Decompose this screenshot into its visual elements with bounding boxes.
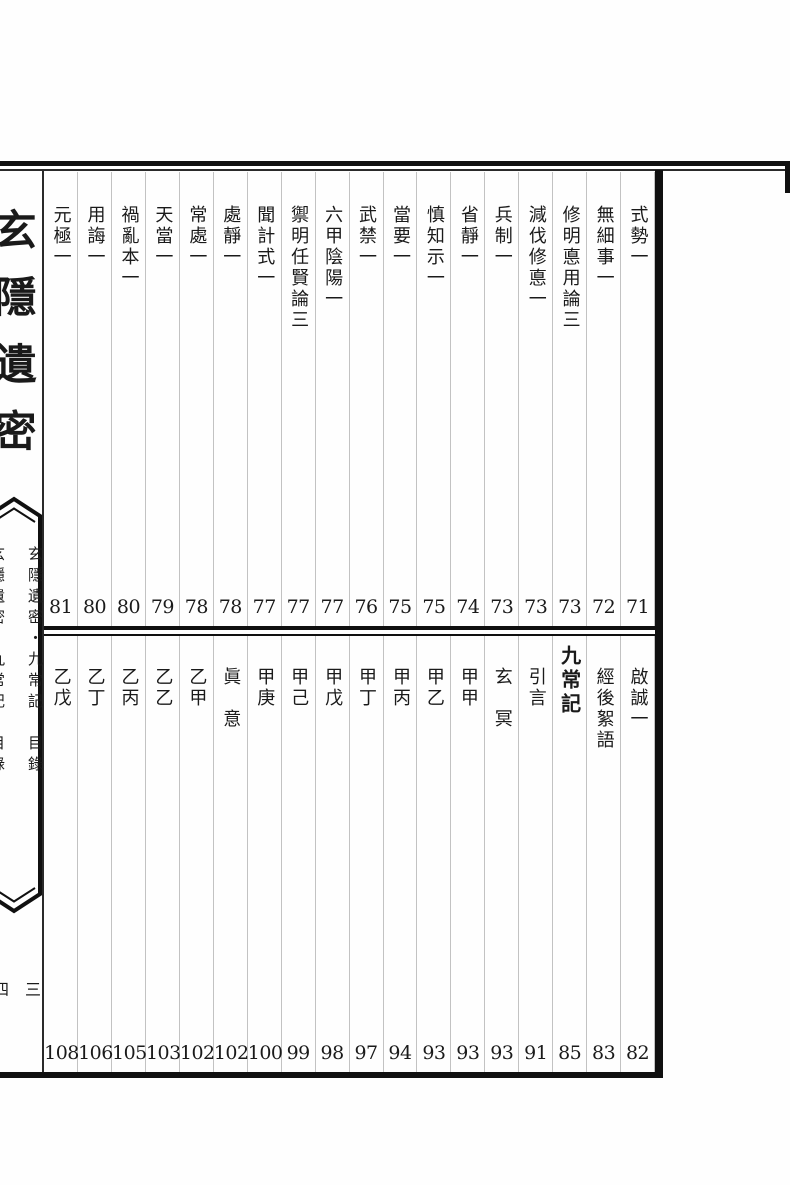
toc-entry-title: 六甲陰陽一 — [323, 205, 341, 310]
toc-entry-title: 常處一 — [187, 205, 205, 268]
toc-entry-column: 無細事一72 — [587, 172, 621, 626]
toc-entry-page-number: 91 — [519, 1042, 552, 1064]
toc-entry-page-number: 75 — [417, 596, 450, 618]
toc-entry-page-number: 102 — [214, 1042, 247, 1064]
toc-entry-title: 玄 冥 — [493, 667, 511, 730]
toc-entry-page-number: 100 — [248, 1042, 281, 1064]
toc-entry-title: 修明悳用論三 — [561, 205, 579, 331]
toc-entry-page-number: 73 — [553, 596, 586, 618]
toc-entry-column: 引言91 — [519, 636, 553, 1072]
toc-entry-title: 乙丁 — [86, 667, 104, 709]
toc-entry-page-number: 72 — [587, 596, 620, 618]
toc-entry-title: 兵制一 — [493, 205, 511, 268]
toc-entry-column: 修明悳用論三73 — [553, 172, 587, 626]
toc-entry-title: 乙戊 — [52, 667, 70, 709]
toc-entry-column: 啟誠一82 — [621, 636, 655, 1072]
toc-entry-title: 無細事一 — [595, 205, 613, 289]
toc-entry-column: 甲丁97 — [350, 636, 384, 1072]
toc-entry-page-number: 77 — [248, 596, 281, 618]
toc-entry-column: 眞 意102 — [214, 636, 248, 1072]
toc-entry-column: 元極一81 — [44, 172, 78, 626]
toc-entry-page-number: 108 — [44, 1042, 77, 1064]
toc-entry-column: 武禁一76 — [350, 172, 384, 626]
toc-entry-title: 甲己 — [289, 667, 307, 709]
toc-entry-title: 乙乙 — [153, 667, 171, 709]
toc-entry-column: 天當一79 — [146, 172, 180, 626]
toc-entry-title: 甲戊 — [323, 667, 341, 709]
toc-entry-page-number: 80 — [112, 596, 145, 618]
toc-entry-title: 處靜一 — [221, 205, 239, 268]
folio-number-three: 三 — [25, 982, 41, 998]
toc-entry-page-number: 77 — [282, 596, 315, 618]
toc-entry-page-number: 77 — [316, 596, 349, 618]
top-border-thin — [0, 169, 790, 171]
toc-entry-page-number: 94 — [384, 1042, 417, 1064]
toc-entry-column: 常處一78 — [180, 172, 214, 626]
book-page: 玄隱遺密 玄隱遺密・九常記 目錄 玄隱遺密・九常記 目錄 三 四 式勢一71無細… — [0, 0, 790, 1185]
toc-entry-title: 元極一 — [52, 205, 70, 268]
toc-entry-title: 啟誠一 — [629, 667, 647, 730]
toc-entry-title: 九常記 — [560, 645, 580, 717]
toc-entry-page-number: 81 — [44, 596, 77, 618]
toc-entry-title: 用誨一 — [86, 205, 104, 268]
right-edge-mark — [785, 161, 790, 193]
toc-entry-page-number: 103 — [146, 1042, 179, 1064]
spine-label: 玄隱遺密・九常記 目錄 — [27, 546, 42, 777]
toc-entry-column: 甲戊98 — [316, 636, 350, 1072]
toc-entry-title: 甲丁 — [357, 667, 375, 709]
toc-entry-column: 乙丙105 — [112, 636, 146, 1072]
toc-entry-page-number: 73 — [485, 596, 518, 618]
toc-entry-column: 乙乙103 — [146, 636, 180, 1072]
toc-entry-column: 兵制一73 — [485, 172, 519, 626]
toc-entry-title: 式勢一 — [629, 205, 647, 268]
toc-entry-page-number: 93 — [417, 1042, 450, 1064]
toc-entry-column: 用誨一80 — [78, 172, 112, 626]
toc-entry-page-number: 99 — [282, 1042, 315, 1064]
toc-entry-title: 引言 — [527, 667, 545, 709]
toc-entry-page-number: 93 — [485, 1042, 518, 1064]
toc-entry-title: 甲庚 — [255, 667, 273, 709]
toc-entry-page-number: 80 — [78, 596, 111, 618]
toc-entry-page-number: 71 — [621, 596, 654, 618]
toc-entry-title: 省靜一 — [459, 205, 477, 268]
toc-entry-column: 甲庚100 — [248, 636, 282, 1072]
toc-entry-column: 禦明任賢論三77 — [282, 172, 316, 626]
toc-entry-column: 甲乙93 — [417, 636, 451, 1072]
toc-entry-title: 甲乙 — [425, 667, 443, 709]
toc-entry-page-number: 83 — [587, 1042, 620, 1064]
toc-entry-page-number: 78 — [180, 596, 213, 618]
toc-entry-page-number: 78 — [214, 596, 247, 618]
toc-entry-page-number: 82 — [621, 1042, 654, 1064]
toc-entry-column: 乙丁106 — [78, 636, 112, 1072]
toc-entry-column: 慎知示一75 — [417, 172, 451, 626]
toc-entry-column: 禍亂本一80 — [112, 172, 146, 626]
toc-entry-title: 禦明任賢論三 — [289, 205, 307, 331]
toc-entry-title: 眞 意 — [221, 667, 239, 730]
toc-entry-column: 玄 冥93 — [485, 636, 519, 1072]
folio-number-four: 四 — [0, 982, 9, 998]
toc-entry-column: 乙甲102 — [180, 636, 214, 1072]
toc-entry-page-number: 98 — [316, 1042, 349, 1064]
toc-entry-column: 式勢一71 — [621, 172, 655, 626]
toc-entry-title: 甲甲 — [459, 667, 477, 709]
main-right-border — [655, 170, 663, 1072]
book-title-vertical: 玄隱遺密 — [0, 208, 33, 476]
toc-entry-column: 當要一75 — [384, 172, 418, 626]
toc-entry-column: 經後絮語83 — [587, 636, 621, 1072]
top-border-thick — [0, 161, 790, 166]
toc-entry-title: 聞計式一 — [255, 205, 273, 289]
toc-entry-page-number: 79 — [146, 596, 179, 618]
spine-label-secondary: 玄隱遺密・九常記 目錄 — [0, 546, 4, 777]
toc-entry-page-number: 76 — [350, 596, 383, 618]
toc-entry-page-number: 75 — [384, 596, 417, 618]
toc-entry-title: 甲丙 — [391, 667, 409, 709]
section-divider-rule — [44, 626, 655, 636]
toc-entry-column: 減伐修悳一73 — [519, 172, 553, 626]
toc-entry-page-number: 85 — [553, 1042, 586, 1064]
toc-entry-page-number: 97 — [350, 1042, 383, 1064]
toc-section-upper: 式勢一71無細事一72修明悳用論三73減伐修悳一73兵制一73省靜一74慎知示一… — [44, 172, 655, 626]
bottom-border — [0, 1072, 663, 1078]
toc-entry-page-number: 106 — [78, 1042, 111, 1064]
toc-section-heading-column: 九常記85 — [553, 636, 587, 1072]
toc-entry-title: 當要一 — [391, 205, 409, 268]
toc-entry-title: 減伐修悳一 — [527, 205, 545, 310]
toc-entry-title: 武禁一 — [357, 205, 375, 268]
toc-entry-column: 甲丙94 — [384, 636, 418, 1072]
toc-entry-title: 經後絮語 — [595, 667, 613, 751]
toc-entry-column: 省靜一74 — [451, 172, 485, 626]
toc-entry-column: 處靜一78 — [214, 172, 248, 626]
toc-entry-title: 天當一 — [153, 205, 171, 268]
toc-entry-page-number: 102 — [180, 1042, 213, 1064]
toc-entry-column: 甲甲93 — [451, 636, 485, 1072]
toc-entry-title: 乙甲 — [187, 667, 205, 709]
toc-entry-title: 慎知示一 — [425, 205, 443, 289]
toc-entry-column: 六甲陰陽一77 — [316, 172, 350, 626]
toc-entry-title: 禍亂本一 — [119, 205, 137, 289]
toc-entry-page-number: 74 — [451, 596, 484, 618]
toc-entry-title: 乙丙 — [119, 667, 137, 709]
toc-entry-column: 乙戊108 — [44, 636, 78, 1072]
toc-entry-page-number: 73 — [519, 596, 552, 618]
toc-entry-page-number: 93 — [451, 1042, 484, 1064]
toc-entry-page-number: 105 — [112, 1042, 145, 1064]
toc-entry-column: 聞計式一77 — [248, 172, 282, 626]
toc-entry-column: 甲己99 — [282, 636, 316, 1072]
toc-section-lower: 啟誠一82經後絮語83九常記85引言91玄 冥93甲甲93甲乙93甲丙94甲丁9… — [44, 636, 655, 1072]
